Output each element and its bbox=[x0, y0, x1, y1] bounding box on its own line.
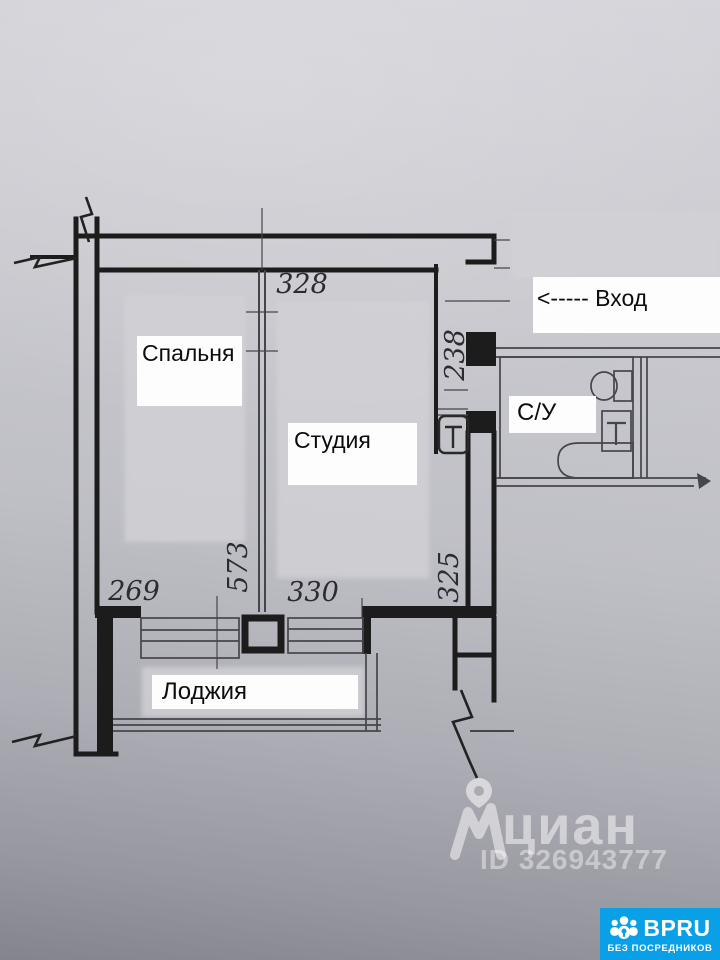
pier-column bbox=[245, 618, 281, 650]
watermark-listing-id: ID 326943777 bbox=[480, 846, 668, 874]
loggia-label: Лоджия bbox=[152, 675, 358, 709]
dimension-325: 325 bbox=[435, 547, 463, 607]
kitchen-duct-icon bbox=[439, 416, 468, 453]
bathtub-icon bbox=[558, 443, 633, 478]
bedroom-label: Спальня bbox=[137, 336, 242, 406]
bathroom-label: С/У bbox=[509, 396, 596, 433]
people-group-icon bbox=[609, 914, 639, 942]
floor-plan-photo: { "plan": { "rooms": { "bedroom": {"labe… bbox=[0, 0, 720, 960]
bpru-brand-text: BPRU bbox=[643, 917, 710, 940]
direction-arrow-icon bbox=[697, 473, 711, 489]
dimension-573: 573 bbox=[224, 537, 252, 597]
bpru-badge: BPRU БЕЗ ПОСРЕДНИКОВ bbox=[600, 908, 720, 960]
window-symbol-studio bbox=[288, 618, 363, 653]
dimension-238: 238 bbox=[441, 325, 469, 385]
wall-break-icon-bottom-left bbox=[12, 735, 77, 746]
bpru-tagline-text: БЕЗ ПОСРЕДНИКОВ bbox=[607, 944, 712, 954]
dimension-328: 328 bbox=[270, 270, 334, 298]
dimension-330: 330 bbox=[285, 578, 341, 606]
sink-icon bbox=[602, 411, 631, 451]
wall-break-icon-bottom-right bbox=[453, 690, 477, 778]
studio-label: Студия bbox=[288, 423, 417, 485]
entrance-label: <----- Вход bbox=[533, 277, 720, 333]
dimension-269: 269 bbox=[104, 577, 164, 605]
toilet-icon bbox=[591, 371, 632, 401]
window-symbol-bedroom bbox=[141, 618, 239, 658]
